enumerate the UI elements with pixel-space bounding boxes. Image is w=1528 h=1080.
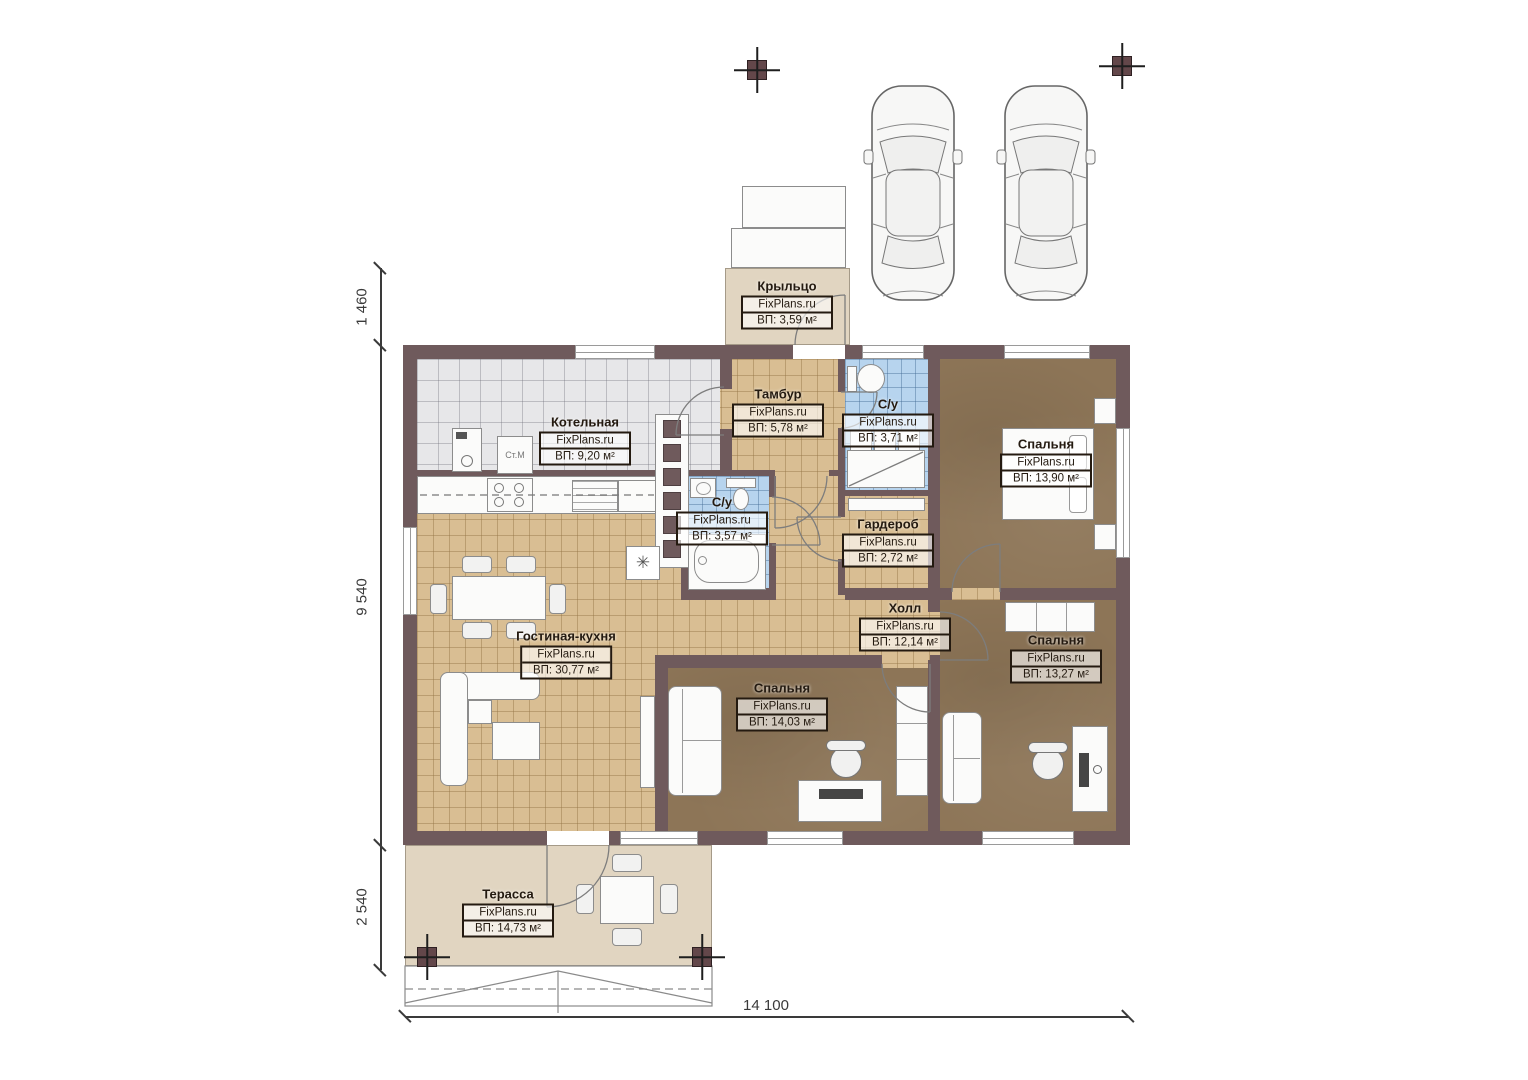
axis-marker-icon [1112,56,1132,76]
closet [896,686,928,796]
shaft-flue [663,420,681,438]
water-heater-icon: ✳ [626,546,660,580]
wall-inner [1000,588,1116,600]
window [1116,428,1130,558]
office-chair [1032,748,1064,780]
washing-machine-label: Ст.М [498,437,532,473]
watermark: FixPlans.ru [743,298,831,314]
closet-divider [1036,603,1037,631]
desk [798,780,882,822]
axis-marker-icon [417,947,437,967]
wardrobe-shelf [848,498,925,511]
room-area: ВП: 13,27 м² [1012,668,1100,682]
window [620,831,698,845]
watermark: FixPlans.ru [464,906,552,922]
room-name: Терасса [462,887,554,902]
chair [660,884,678,914]
dimension-label: 14 100 [743,997,789,1014]
watermark: FixPlans.ru [1012,652,1100,668]
room-area: ВП: 13,90 м² [1002,472,1090,486]
door-opening [547,831,609,845]
roof-gable-line [405,971,712,1003]
wall-inner [655,655,882,668]
chair [576,884,594,914]
toilet [857,364,885,393]
hall-closet [1005,602,1095,632]
wall-inner [720,359,732,389]
wall-right [1116,345,1130,845]
bathtub-drain [698,556,707,565]
corner-sofa [440,672,468,786]
boiler-panel [456,432,467,439]
chair [612,928,642,946]
door-opening [793,345,845,359]
dimension-label: 2 540 [354,888,371,926]
room-area: ВП: 14,03 м² [738,716,826,730]
room-name: С/у [842,397,934,412]
room-label-porch: Крыльцо FixPlans.ru ВП: 3,59 м² [741,279,833,330]
terrace-table [600,876,654,924]
room-label-vestibule: Тамбур FixPlans.ru ВП: 5,78 м² [732,387,824,438]
monitor [1079,753,1089,787]
car-icon [996,78,1096,308]
closet-divider [1066,603,1067,631]
room-area: ВП: 3,57 м² [678,530,766,544]
room-area: ВП: 2,72 м² [844,552,932,566]
room-name: Холл [859,601,951,616]
window [767,831,843,845]
dining-table [452,576,546,620]
wall-inner [928,660,940,845]
shower [847,450,925,488]
room-label-bedroom-bottom-mid: Спальня FixPlans.ru ВП: 14,03 м² [736,681,828,732]
watermark: FixPlans.ru [844,536,932,552]
sofa-cushion-line [954,758,980,759]
room-name: С/у [676,495,768,510]
watermark: FixPlans.ru [678,514,766,530]
room-area: ВП: 9,20 м² [541,450,629,464]
coffee-table [492,722,540,760]
wall-inner [838,359,845,392]
room-label-bedroom-bottom-right: Спальня FixPlans.ru ВП: 13,27 м² [1010,633,1102,684]
dimension-label: 9 540 [354,578,371,616]
shaft-flue [663,468,681,486]
closet-divider [897,759,927,760]
room-name: Крыльцо [741,279,833,294]
oven [572,480,618,512]
room-label-boiler: Котельная FixPlans.ru ВП: 9,20 м² [539,415,631,466]
wall-inner [845,490,928,496]
room-label-hall: Холл FixPlans.ru ВП: 12,14 м² [859,601,951,652]
wall-inner [845,588,952,600]
sofa [668,686,722,796]
watermark: FixPlans.ru [1002,456,1090,472]
window [862,345,924,359]
chair [506,556,536,573]
sofa-cushion-line [683,740,721,741]
room-area: ВП: 5,78 м² [734,422,822,436]
watermark: FixPlans.ru [522,648,610,664]
floor-plan: Ст.М ✳ [0,0,1528,1080]
room-area: ВП: 30,77 м² [522,664,610,678]
chair [612,854,642,872]
room-label-bathroom-mid: С/у FixPlans.ru ВП: 3,57 м² [676,495,768,546]
porch-step [742,186,846,228]
axis-marker-icon [692,947,712,967]
window [1004,345,1090,359]
room-label-wardrobe: Гардероб FixPlans.ru ВП: 2,72 м² [842,517,934,568]
monitor [819,789,863,799]
loveseat [942,712,982,804]
boiler-dial [461,455,473,467]
shaft-flue [663,444,681,462]
tv-stand [640,696,655,788]
room-name: Тамбур [732,387,824,402]
watermark: FixPlans.ru [844,416,932,432]
wall-inner [655,655,668,845]
sink-basin [696,482,711,495]
kitchen-cabinet [618,480,656,512]
wall-inner [838,490,845,517]
room-name: Гардероб [842,517,934,532]
window [575,345,655,359]
toilet-tank [726,478,756,488]
chair [430,584,447,614]
room-name: Гостиная-кухня [516,629,616,644]
room-area: ВП: 3,59 м² [743,314,831,328]
porch-step [731,228,846,268]
chair [549,584,566,614]
room-label-terrace: Терасса FixPlans.ru ВП: 14,73 м² [462,887,554,938]
room-name: Спальня [1000,437,1092,452]
window [982,831,1074,845]
room-name: Спальня [1010,633,1102,648]
desk [1072,726,1108,812]
dimension-line-bottom [405,1016,1128,1018]
dimension-label: 1 460 [354,288,371,326]
stove [487,478,533,512]
wall-inner [769,476,776,497]
stove-burner [494,483,504,493]
sofa-cushion [468,700,492,724]
stove-burner [514,497,524,507]
window [403,527,417,615]
room-name: Спальня [736,681,828,696]
stove-burner [494,497,504,507]
chair [462,622,492,639]
toilet-tank [847,366,857,392]
room-area: ВП: 14,73 м² [464,922,552,936]
stove-burner [514,483,524,493]
room-name: Котельная [539,415,631,430]
dimension-line-left [380,268,382,970]
boiler [452,428,482,472]
office-chair [830,746,862,778]
nightstand [1094,398,1116,424]
room-label-bathroom-top: С/у FixPlans.ru ВП: 3,71 м² [842,397,934,448]
room-label-living-kitchen: Гостиная-кухня FixPlans.ru ВП: 30,77 м² [516,629,616,680]
mouse [1093,765,1102,774]
watermark: FixPlans.ru [861,620,949,636]
wall-inner [829,470,845,476]
room-area: ВП: 12,14 м² [861,636,949,650]
closet-divider [897,723,927,724]
washing-machine: Ст.М [497,436,533,474]
chair [462,556,492,573]
nightstand [1094,524,1116,550]
sofa-back-line [682,689,683,793]
watermark: FixPlans.ru [541,434,629,450]
room-label-bedroom-top-right: Спальня FixPlans.ru ВП: 13,90 м² [1000,437,1092,488]
car-icon [863,78,963,308]
roof-projection-box [405,966,712,1006]
room-area: ВП: 3,71 м² [844,432,932,446]
watermark: FixPlans.ru [734,406,822,422]
wall-inner [720,429,732,470]
watermark: FixPlans.ru [738,700,826,716]
axis-marker-icon [747,60,767,80]
